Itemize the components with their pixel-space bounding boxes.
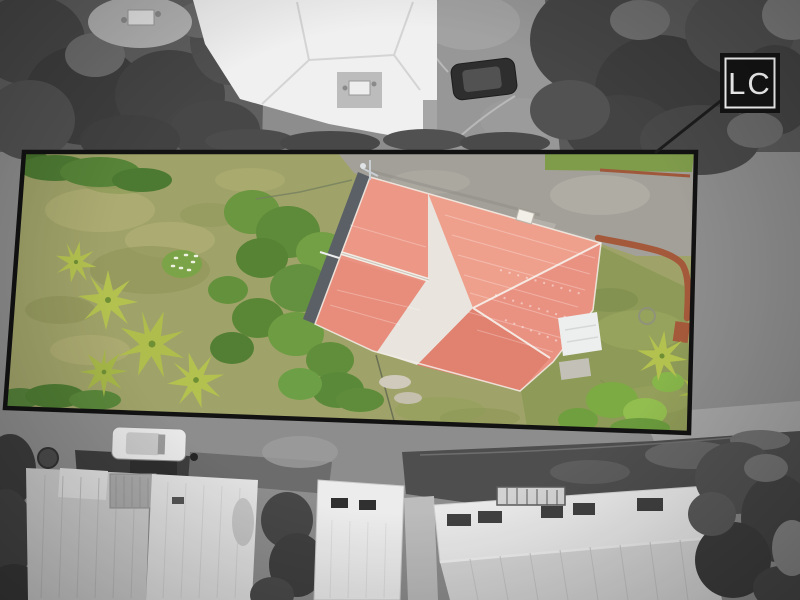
roof-structure — [110, 474, 156, 508]
garden-chair — [155, 11, 161, 17]
skylight — [331, 498, 348, 508]
apartment-left-unit — [404, 496, 438, 600]
lc-logo: LC — [720, 53, 780, 113]
tree-highlight — [744, 454, 788, 482]
garden-chair — [121, 17, 127, 23]
grass-patch — [215, 168, 285, 192]
neighbor-roof-c — [314, 480, 404, 600]
tree-blob — [530, 80, 610, 140]
brick-planter — [673, 321, 691, 343]
shrub — [112, 168, 172, 192]
patio-chair — [343, 86, 348, 91]
fern-center — [105, 297, 111, 303]
tree-blob — [688, 492, 736, 536]
garden-path — [379, 375, 411, 389]
garden-path — [394, 392, 422, 404]
roof-window — [573, 503, 595, 515]
shrub-gray — [383, 129, 467, 151]
garden-path — [232, 498, 254, 546]
shrub — [336, 388, 384, 412]
roof-window — [637, 498, 663, 511]
garden-planter — [38, 448, 58, 468]
car-roof — [126, 432, 161, 455]
satellite-dish — [360, 163, 366, 169]
roof-vent — [172, 497, 184, 504]
roof-flat-section — [58, 468, 108, 500]
flowering-bush — [162, 250, 202, 278]
grass-verge — [545, 154, 694, 172]
concrete-patch — [262, 436, 338, 468]
manhole — [190, 453, 198, 461]
grass-patch — [25, 296, 95, 324]
grass-patch — [50, 335, 130, 365]
parked-car-gray — [450, 57, 518, 101]
shrub — [278, 368, 322, 400]
driveway-patch — [550, 175, 650, 215]
roof-window — [541, 506, 563, 518]
parked-car-white — [111, 427, 186, 462]
garden-table — [128, 10, 154, 25]
deck-inset — [130, 461, 177, 475]
bush — [162, 250, 202, 278]
patio-chair — [372, 82, 377, 87]
aerial-photo-canvas: LC — [0, 0, 800, 600]
shrub — [69, 390, 121, 410]
roof-window — [478, 511, 502, 523]
lc-logo-text: LC — [728, 66, 772, 101]
skylight — [359, 500, 376, 510]
tree-highlight — [727, 112, 783, 148]
car-windshield — [158, 434, 166, 454]
property-parcel — [0, 151, 729, 438]
tree-highlight — [610, 0, 670, 40]
shrub — [208, 276, 248, 304]
aerial-photo: LC — [0, 0, 800, 600]
patio-table — [349, 81, 370, 95]
porch-roof — [558, 312, 602, 356]
car-roof — [462, 66, 502, 92]
shrub — [210, 332, 254, 364]
grass-patch — [45, 188, 155, 232]
shrub — [652, 372, 684, 392]
road-patch — [550, 460, 630, 484]
roof-window — [447, 514, 471, 526]
